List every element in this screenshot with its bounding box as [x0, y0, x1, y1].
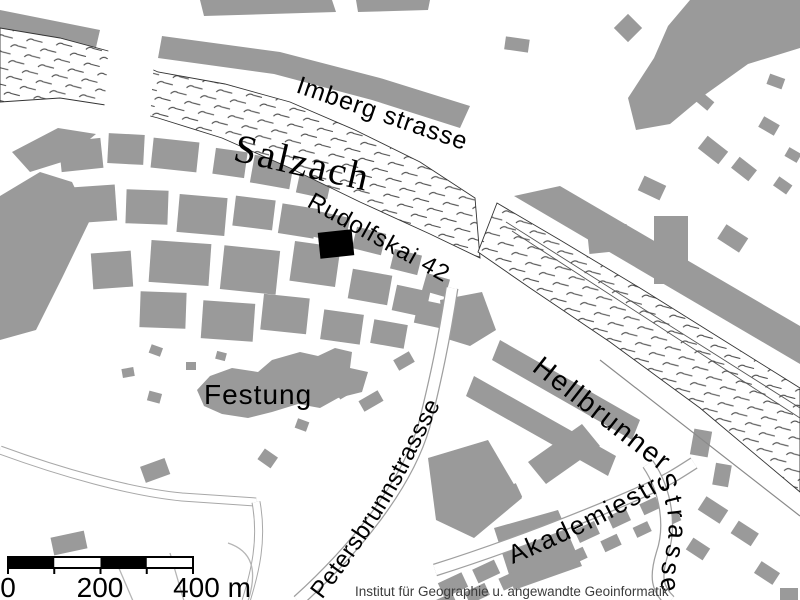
bridges-group: [104, 0, 158, 120]
scale-tick-0: 0: [0, 572, 16, 600]
festung-label: Festung: [204, 379, 312, 410]
scale-bar-segment: [101, 557, 147, 568]
bridge: [104, 0, 158, 120]
attribution-text: Institut für Geographie u. angewandte Ge…: [355, 584, 669, 599]
scale-tick-200: 200: [77, 572, 124, 600]
scale-tick-400: 400 m: [173, 572, 251, 600]
scale-bar-segment: [8, 557, 54, 568]
city-map-canvas: Salzach Imberg strasse Rudolfskai 42 Fes…: [0, 0, 800, 600]
map-container: Salzach Imberg strasse Rudolfskai 42 Fes…: [0, 0, 800, 600]
